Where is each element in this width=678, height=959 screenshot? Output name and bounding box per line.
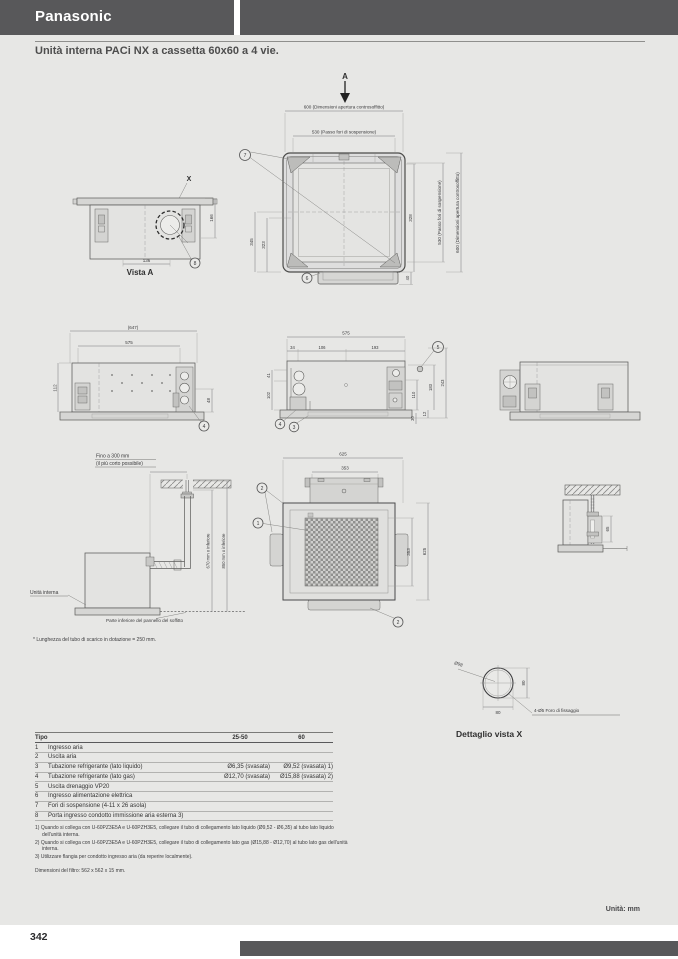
cell-60: Ø9,52 (svasata) 1)	[270, 762, 333, 772]
dim-575: 575	[125, 340, 133, 345]
dim-34: 34	[290, 345, 295, 350]
spec-row-7: 7 Fori di sospensione (4-11 x 26 asola)	[35, 801, 333, 811]
spec-row-6: 6 Ingresso alimentazione elettrica	[35, 792, 333, 802]
dim-pitch-top: 530 (Passo fori di sospensione)	[312, 130, 377, 135]
cell-25-50: Ø6,35 (svasata)	[210, 762, 270, 772]
cell-25-50	[210, 743, 270, 753]
dim-pitch-right: 530 (Passo fori di sospensione)	[437, 180, 442, 245]
dim-80-bottom: 80	[495, 710, 501, 715]
detail-x-drawing: Ø98 80 80 4-Ø5 Foro di fissaggio Dettagl…	[448, 653, 633, 748]
cell-num: 6	[35, 792, 48, 802]
filter-dimensions-note: Dimensioni del filtro: 562 x 562 x 15 mm…	[35, 868, 125, 874]
dim-353-top: 353	[341, 466, 349, 471]
header-60: 60	[270, 733, 333, 743]
dim-625-top: 625	[339, 452, 347, 457]
dim-243: 243	[440, 379, 445, 387]
cell-25-50	[210, 801, 270, 811]
cell-25-50: Ø12,70 (svasata)	[210, 772, 270, 782]
cell-60: Ø15,88 (svasata) 2)	[270, 772, 333, 782]
spec-row-8: 8 Porta ingresso condotto immissione ari…	[35, 811, 333, 821]
dim-80-right: 80	[521, 680, 526, 686]
callout-1: 1	[257, 521, 260, 527]
dim-diameter: Ø98	[454, 660, 464, 668]
header-tipo: Tipo	[35, 733, 210, 743]
title-rule	[35, 41, 645, 42]
vista-a-title: Vista A	[127, 268, 154, 277]
drain-note-line2: (il più corto possibile)	[96, 461, 143, 467]
side-view-center-drawing: 575 34 106 193 5 41 102 110 183	[238, 323, 488, 448]
spec-row-2: 2 Uscita aria	[35, 752, 333, 762]
cell-num: 5	[35, 782, 48, 792]
cell-label: Fori di sospensione (4-11 x 26 asola)	[48, 801, 210, 811]
cell-label: Uscita drenaggio VP20	[48, 782, 210, 792]
dim-41: 41	[266, 373, 271, 378]
cell-60	[270, 782, 333, 792]
side-view-left-drawing: (647) 575 112 48 4	[52, 323, 237, 435]
dim-647: (647)	[128, 325, 139, 330]
callout-4: 4	[279, 422, 282, 428]
cell-60	[270, 743, 333, 753]
dim-12: 12	[422, 411, 427, 416]
ceiling-slab-hatch	[565, 485, 620, 495]
dim-opening-right: 600 (Dimensioni apertura controsoffitto)	[455, 172, 460, 253]
spec-row-1: 1 Ingresso aria	[35, 743, 333, 753]
cell-num: 3	[35, 762, 48, 772]
ceiling-panel-label: Parte inferiore del pannello del soffitt…	[106, 618, 183, 623]
page-title: Unità interna PACi NX a cassetta 60x60 a…	[35, 45, 279, 57]
dim-323: 323	[261, 241, 266, 249]
cell-25-50	[210, 811, 270, 821]
footer-bar-left	[0, 941, 234, 956]
panasonic-logo: Panasonic	[35, 8, 112, 25]
cell-25-50	[210, 752, 270, 762]
panel-bottom-view-drawing: 625 353 353 625 2 1 2	[248, 446, 463, 638]
cell-num: 2	[35, 752, 48, 762]
dim-106: 106	[319, 345, 327, 350]
pipe-insulation-ticks	[154, 562, 177, 568]
drain-piping-drawing: Fino a 300 mm (il più corto possibile) 6…	[28, 448, 263, 638]
callout-7: 7	[244, 153, 247, 159]
cell-num: 7	[35, 801, 48, 811]
dim-102: 102	[266, 391, 271, 399]
spec-row-4: 4 Tubazione refrigerante (lato gas) Ø12,…	[35, 772, 333, 782]
header-bar: Panasonic	[0, 0, 678, 35]
riser-dim-outer: 850 mm o inferiore	[221, 533, 226, 569]
dim-112: 112	[52, 384, 57, 392]
control-box	[310, 478, 378, 503]
datasheet-page: Panasonic Unità interna PACi NX a casset…	[0, 0, 678, 959]
footnote-1: 1) Quando si collega con U-60PZ3E5A e U-…	[35, 825, 350, 839]
indoor-unit-body	[85, 553, 150, 608]
spec-header-row: Tipo 25-50 60	[35, 733, 333, 743]
cell-num: 8	[35, 811, 48, 821]
units-note: Unità: mm	[555, 906, 640, 913]
dim-136: 136	[143, 258, 151, 263]
callout-6: 6	[306, 276, 309, 282]
callout-2a: 2	[261, 486, 264, 492]
header-25-50: 25-50	[210, 733, 270, 743]
top-view-drawing: A 600 (Dimensioni apertura controsoffitt…	[228, 66, 483, 301]
drain-hose-footnote: * Lunghezza del tubo di scarico in dotaz…	[33, 637, 156, 643]
dim-193: 193	[372, 345, 380, 350]
dim-110: 110	[411, 391, 416, 398]
dim-353-right: 353	[406, 548, 411, 556]
cell-label: Uscita aria	[48, 752, 210, 762]
vista-a-drawing: X 166 136 8 Vista A	[55, 168, 235, 286]
detail-x-title: Dettaglio vista X	[456, 729, 522, 739]
cell-label: Tubazione refrigerante (lato gas)	[48, 772, 210, 782]
detail-mark-x: X	[187, 176, 192, 183]
header-divider	[234, 0, 240, 35]
dim-183: 183	[428, 383, 433, 391]
cell-60	[270, 801, 333, 811]
footnote-3: 3) Utilizzare flangia per condotto ingre…	[35, 854, 350, 861]
cell-60	[270, 811, 333, 821]
section-arrow: A	[340, 72, 350, 103]
dim-40: 40	[405, 275, 410, 280]
cell-60	[270, 792, 333, 802]
dim-166: 166	[209, 214, 214, 222]
cell-num: 4	[35, 772, 48, 782]
table-footnotes: 1) Quando si collega con U-60PZ3E5A e U-…	[35, 825, 350, 862]
footer-bar-right	[240, 941, 678, 956]
spec-row-3: 3 Tubazione refrigerante (lato liquido) …	[35, 762, 333, 772]
side-view-right-drawing	[495, 352, 660, 427]
dim-30: 30	[410, 416, 415, 421]
drain-note-line1: Fino a 300 mm	[96, 454, 129, 460]
cell-label: Porta ingresso condotto immissione aria …	[48, 811, 210, 821]
cell-label: Tubazione refrigerante (lato liquido)	[48, 762, 210, 772]
dim-48: 48	[206, 398, 211, 404]
riser-dim-inner: 670 mm o inferiore	[206, 533, 211, 569]
dim-345: 345	[249, 238, 254, 246]
fixing-hole-note: 4-Ø5 Foro di fissaggio	[534, 708, 580, 713]
cell-num: 1	[35, 743, 48, 753]
dim-328: 328	[408, 214, 413, 222]
ceiling-panel	[75, 608, 160, 615]
cell-25-50	[210, 792, 270, 802]
intake-grille	[305, 518, 378, 586]
spec-table: Tipo 25-50 60 1 Ingresso aria 2 Uscita a…	[35, 732, 333, 821]
callout-4: 4	[203, 424, 206, 430]
dim-575: 575	[342, 331, 350, 336]
section-arrow-label: A	[342, 72, 348, 81]
cell-label: Ingresso aria	[48, 743, 210, 753]
callout-2b: 2	[397, 620, 400, 626]
ceiling-slab-hatch	[161, 480, 231, 488]
dim-65: 65	[605, 526, 610, 532]
cell-label: Ingresso alimentazione elettrica	[48, 792, 210, 802]
cell-60	[270, 752, 333, 762]
dim-625-right: 625	[422, 547, 427, 555]
dim-opening-top: 600 (Dimensioni apertura controsoffitto)	[304, 105, 385, 110]
callout-3: 3	[293, 425, 296, 431]
callout-5: 5	[437, 345, 440, 351]
cell-25-50	[210, 782, 270, 792]
callout-8: 8	[194, 261, 197, 267]
spec-row-5: 5 Uscita drenaggio VP20	[35, 782, 333, 792]
footnote-2: 2) Quando si collega con U-60PZ3E5A e U-…	[35, 840, 350, 854]
indoor-unit-label: Unità interna	[30, 590, 59, 596]
suspension-bracket-drawing: 65	[543, 458, 658, 570]
